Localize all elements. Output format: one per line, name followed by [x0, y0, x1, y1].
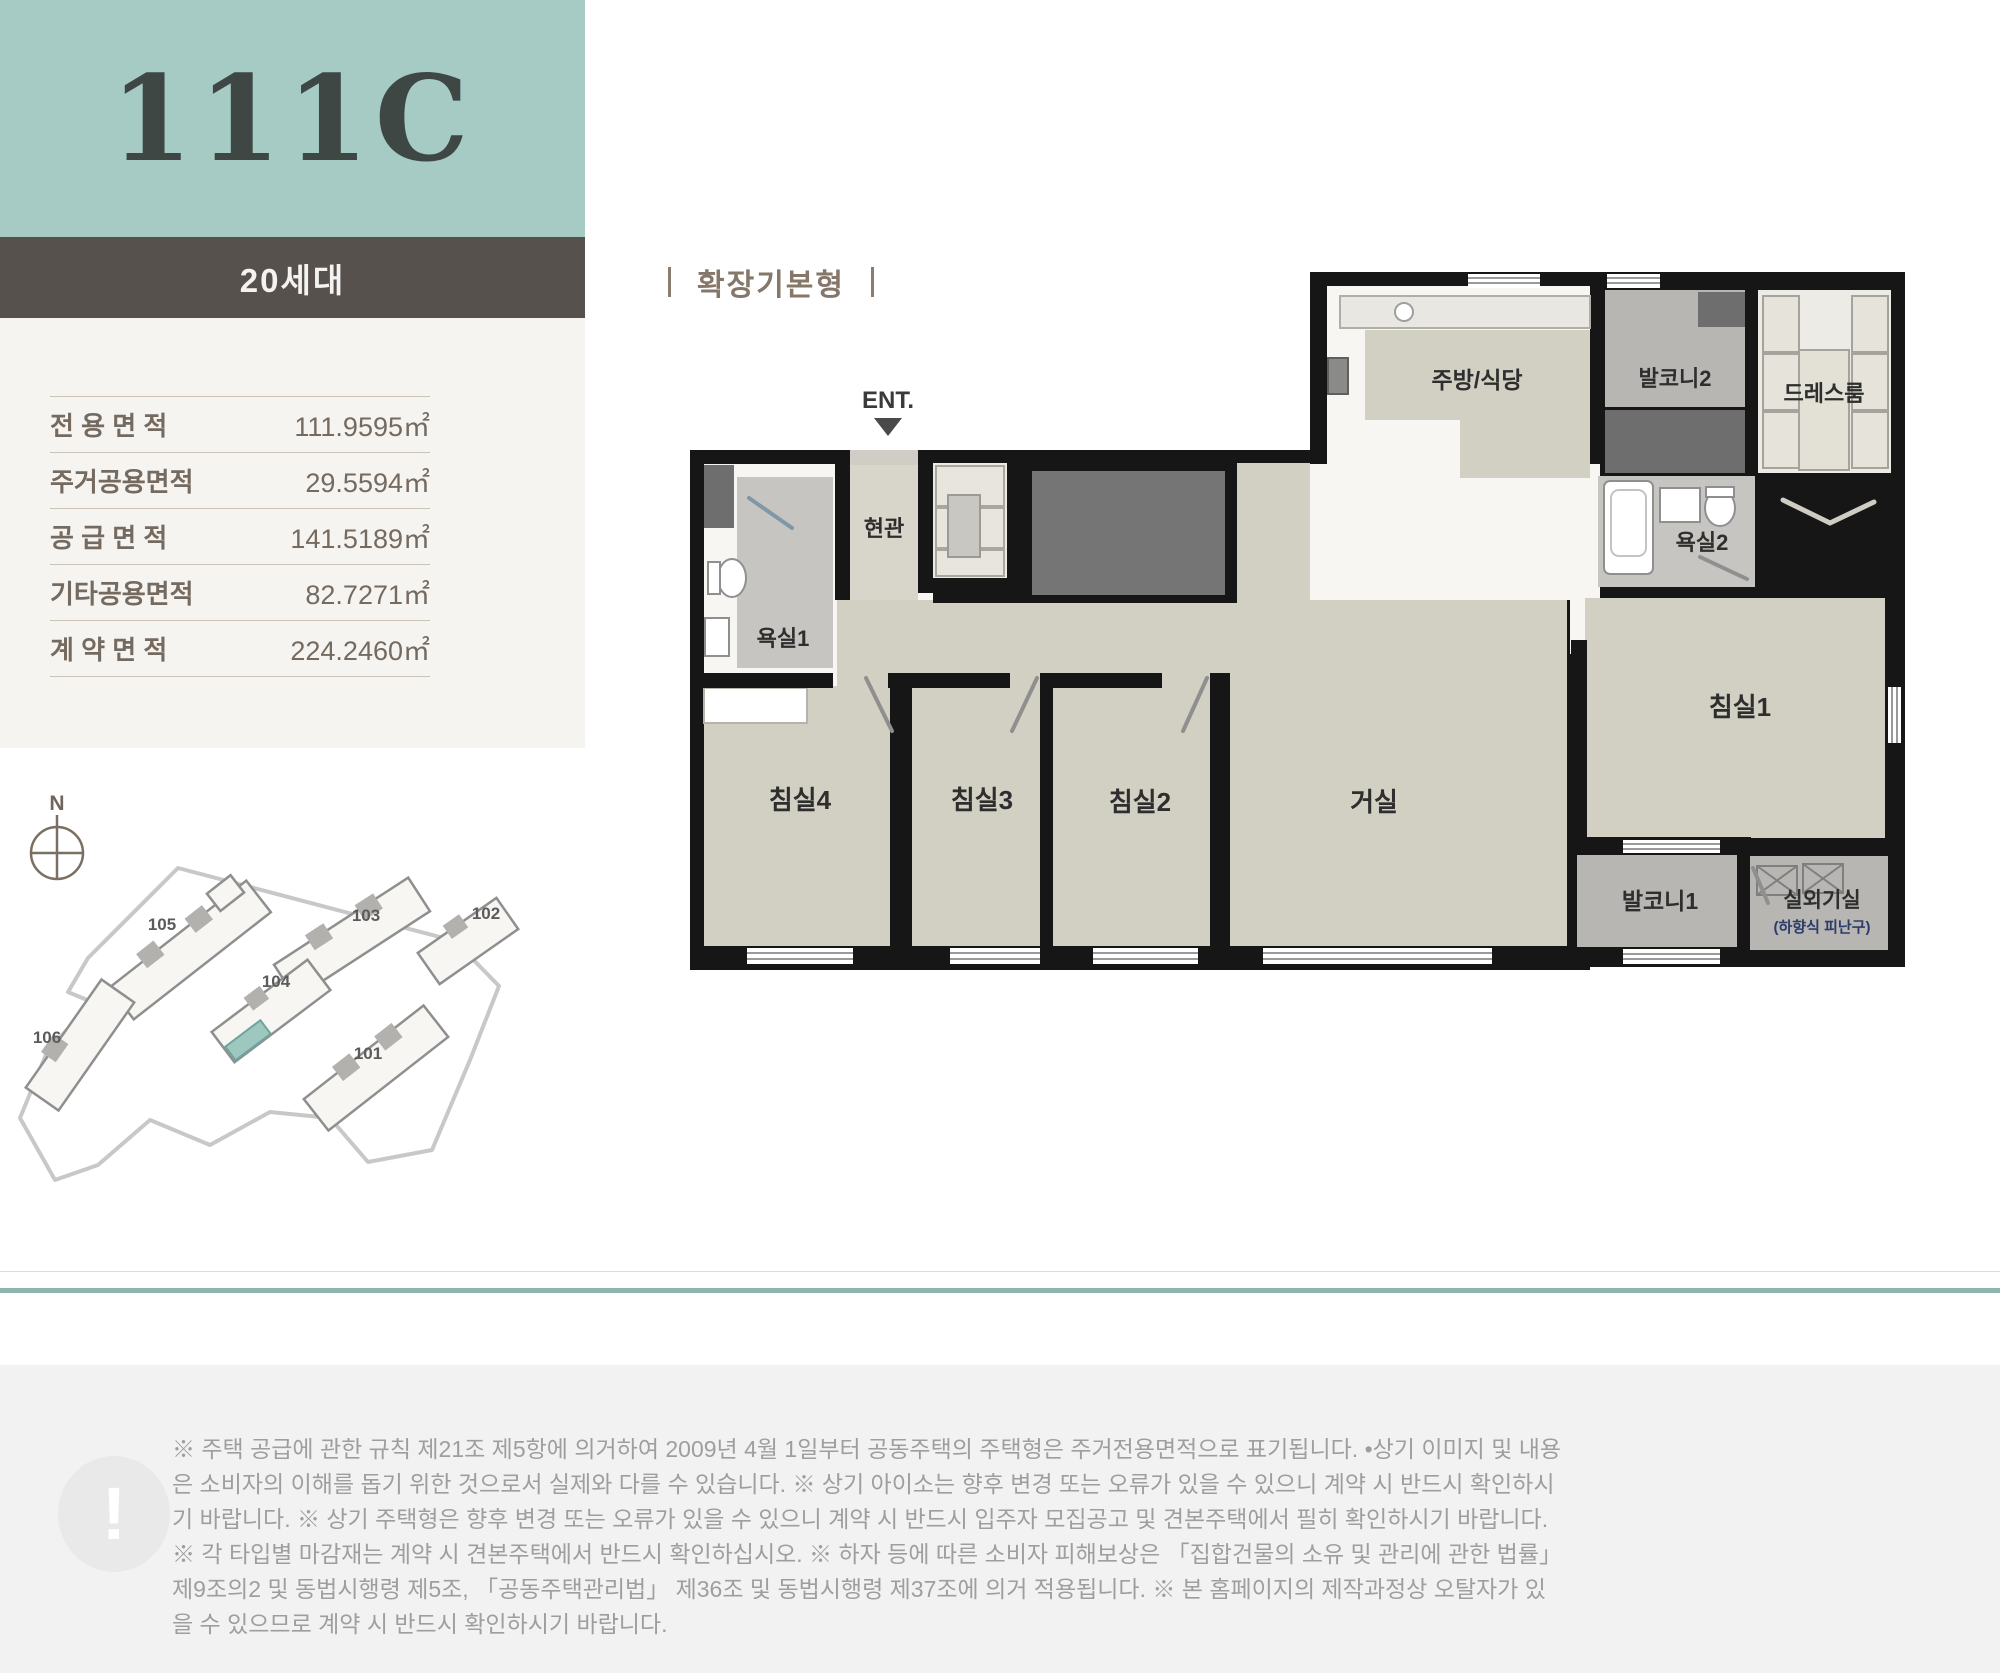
- room-label-outdoor-unit-sub: (하향식 피난구): [1774, 919, 1871, 936]
- room-label-bedroom3: 침실3: [951, 785, 1013, 815]
- table-row: 계 약 면 적 224.2460㎡: [50, 620, 430, 677]
- site-plan: N 105 103 102 104 101 106: [0, 760, 520, 1190]
- exclamation-icon: !: [58, 1456, 170, 1572]
- compass-icon: [30, 815, 84, 880]
- area-value: 141.5189㎡: [290, 517, 430, 556]
- building-label: 104: [262, 972, 291, 991]
- divider-teal-line: [0, 1288, 2000, 1293]
- building-101: [299, 999, 448, 1130]
- room-label-bedroom1: 침실1: [1709, 692, 1771, 722]
- room-label-outdoor-unit: 실외기실: [1783, 889, 1860, 912]
- table-row: 전 용 면 적 111.9595㎡: [50, 396, 430, 452]
- room-label-balcony1: 발코니1: [1622, 888, 1698, 914]
- area-label: 주거공용면적: [50, 462, 194, 499]
- room-label-entry: 현관: [864, 516, 904, 541]
- unit-type-header: 111C: [0, 0, 585, 237]
- building-label: 105: [148, 915, 176, 934]
- building-label: 103: [352, 906, 380, 925]
- core-block: [1020, 463, 1237, 603]
- room-label-bath1: 욕실1: [757, 626, 810, 651]
- building-label: 106: [33, 1028, 61, 1047]
- room-label-kitchen: 주방/식당: [1431, 367, 1522, 393]
- entrance-door: [850, 450, 918, 465]
- compass-north-label: N: [49, 792, 64, 815]
- area-value: 29.5594㎡: [305, 461, 430, 500]
- building-104-highlighted: [207, 953, 331, 1062]
- table-row: 기타공용면적 82.7271㎡: [50, 564, 430, 620]
- building-label: 102: [472, 904, 500, 923]
- ent-label: ENT.: [862, 387, 914, 414]
- area-label: 계 약 면 적: [50, 630, 167, 667]
- area-label: 공 급 면 적: [50, 518, 167, 555]
- room-label-bath2: 욕실2: [1676, 530, 1729, 555]
- area-table: 전 용 면 적 111.9595㎡ 주거공용면적 29.5594㎡ 공 급 면 …: [50, 396, 430, 677]
- table-row: 주거공용면적 29.5594㎡: [50, 452, 430, 508]
- room-label-bedroom4: 침실4: [769, 785, 832, 815]
- area-label: 전 용 면 적: [50, 406, 167, 443]
- floor-plan: ENT.: [540, 190, 1960, 1080]
- exclamation-mark: !: [102, 1477, 127, 1551]
- disclaimer-text: ※ 주택 공급에 관한 규칙 제21조 제5항에 의거하여 2009년 4월 1…: [172, 1432, 1564, 1642]
- building-label: 101: [354, 1044, 382, 1063]
- entrance-arrow-icon: [874, 418, 902, 436]
- divider-line: [0, 1271, 2000, 1272]
- unit-type-code: 111C: [110, 60, 474, 178]
- area-value: 224.2460㎡: [290, 629, 430, 668]
- households-count: 20세대: [240, 254, 345, 302]
- room-label-balcony2: 발코니2: [1639, 366, 1712, 391]
- area-value: 82.7271㎡: [305, 573, 430, 612]
- entrance-marker: ENT.: [862, 387, 914, 436]
- room-label-living: 거실: [1350, 787, 1398, 817]
- building-102: [413, 891, 518, 984]
- area-label: 기타공용면적: [50, 574, 194, 611]
- room-label-dressroom: 드레스룸: [1784, 381, 1865, 406]
- households-bar: 20세대: [0, 237, 585, 318]
- table-row: 공 급 면 적 141.5189㎡: [50, 508, 430, 564]
- area-value: 111.9595㎡: [294, 405, 430, 444]
- room-label-bedroom2: 침실2: [1109, 787, 1171, 817]
